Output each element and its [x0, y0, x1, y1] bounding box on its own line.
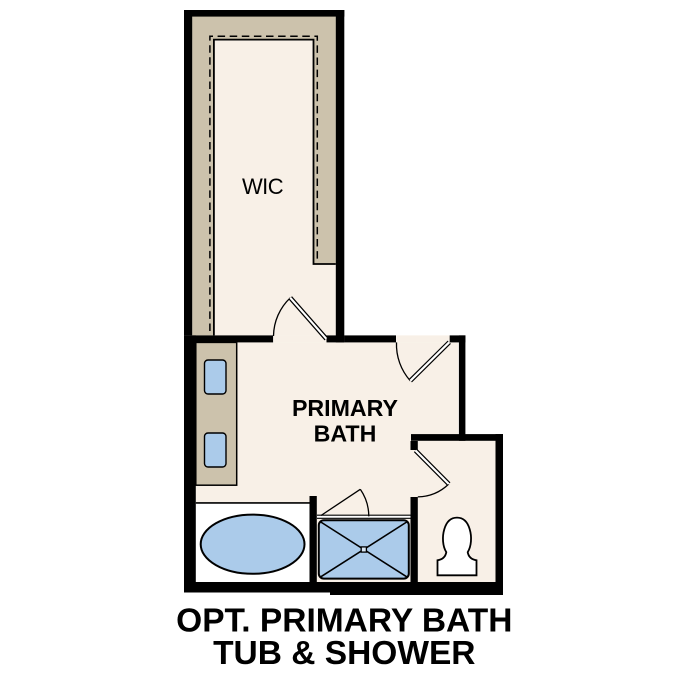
svg-text:WIC: WIC [242, 174, 284, 199]
svg-text:BATH: BATH [314, 420, 377, 446]
svg-text:PRIMARY: PRIMARY [292, 395, 399, 421]
svg-text:OPT. PRIMARY BATH: OPT. PRIMARY BATH [176, 603, 512, 640]
svg-text:TUB & SHOWER: TUB & SHOWER [213, 635, 475, 672]
